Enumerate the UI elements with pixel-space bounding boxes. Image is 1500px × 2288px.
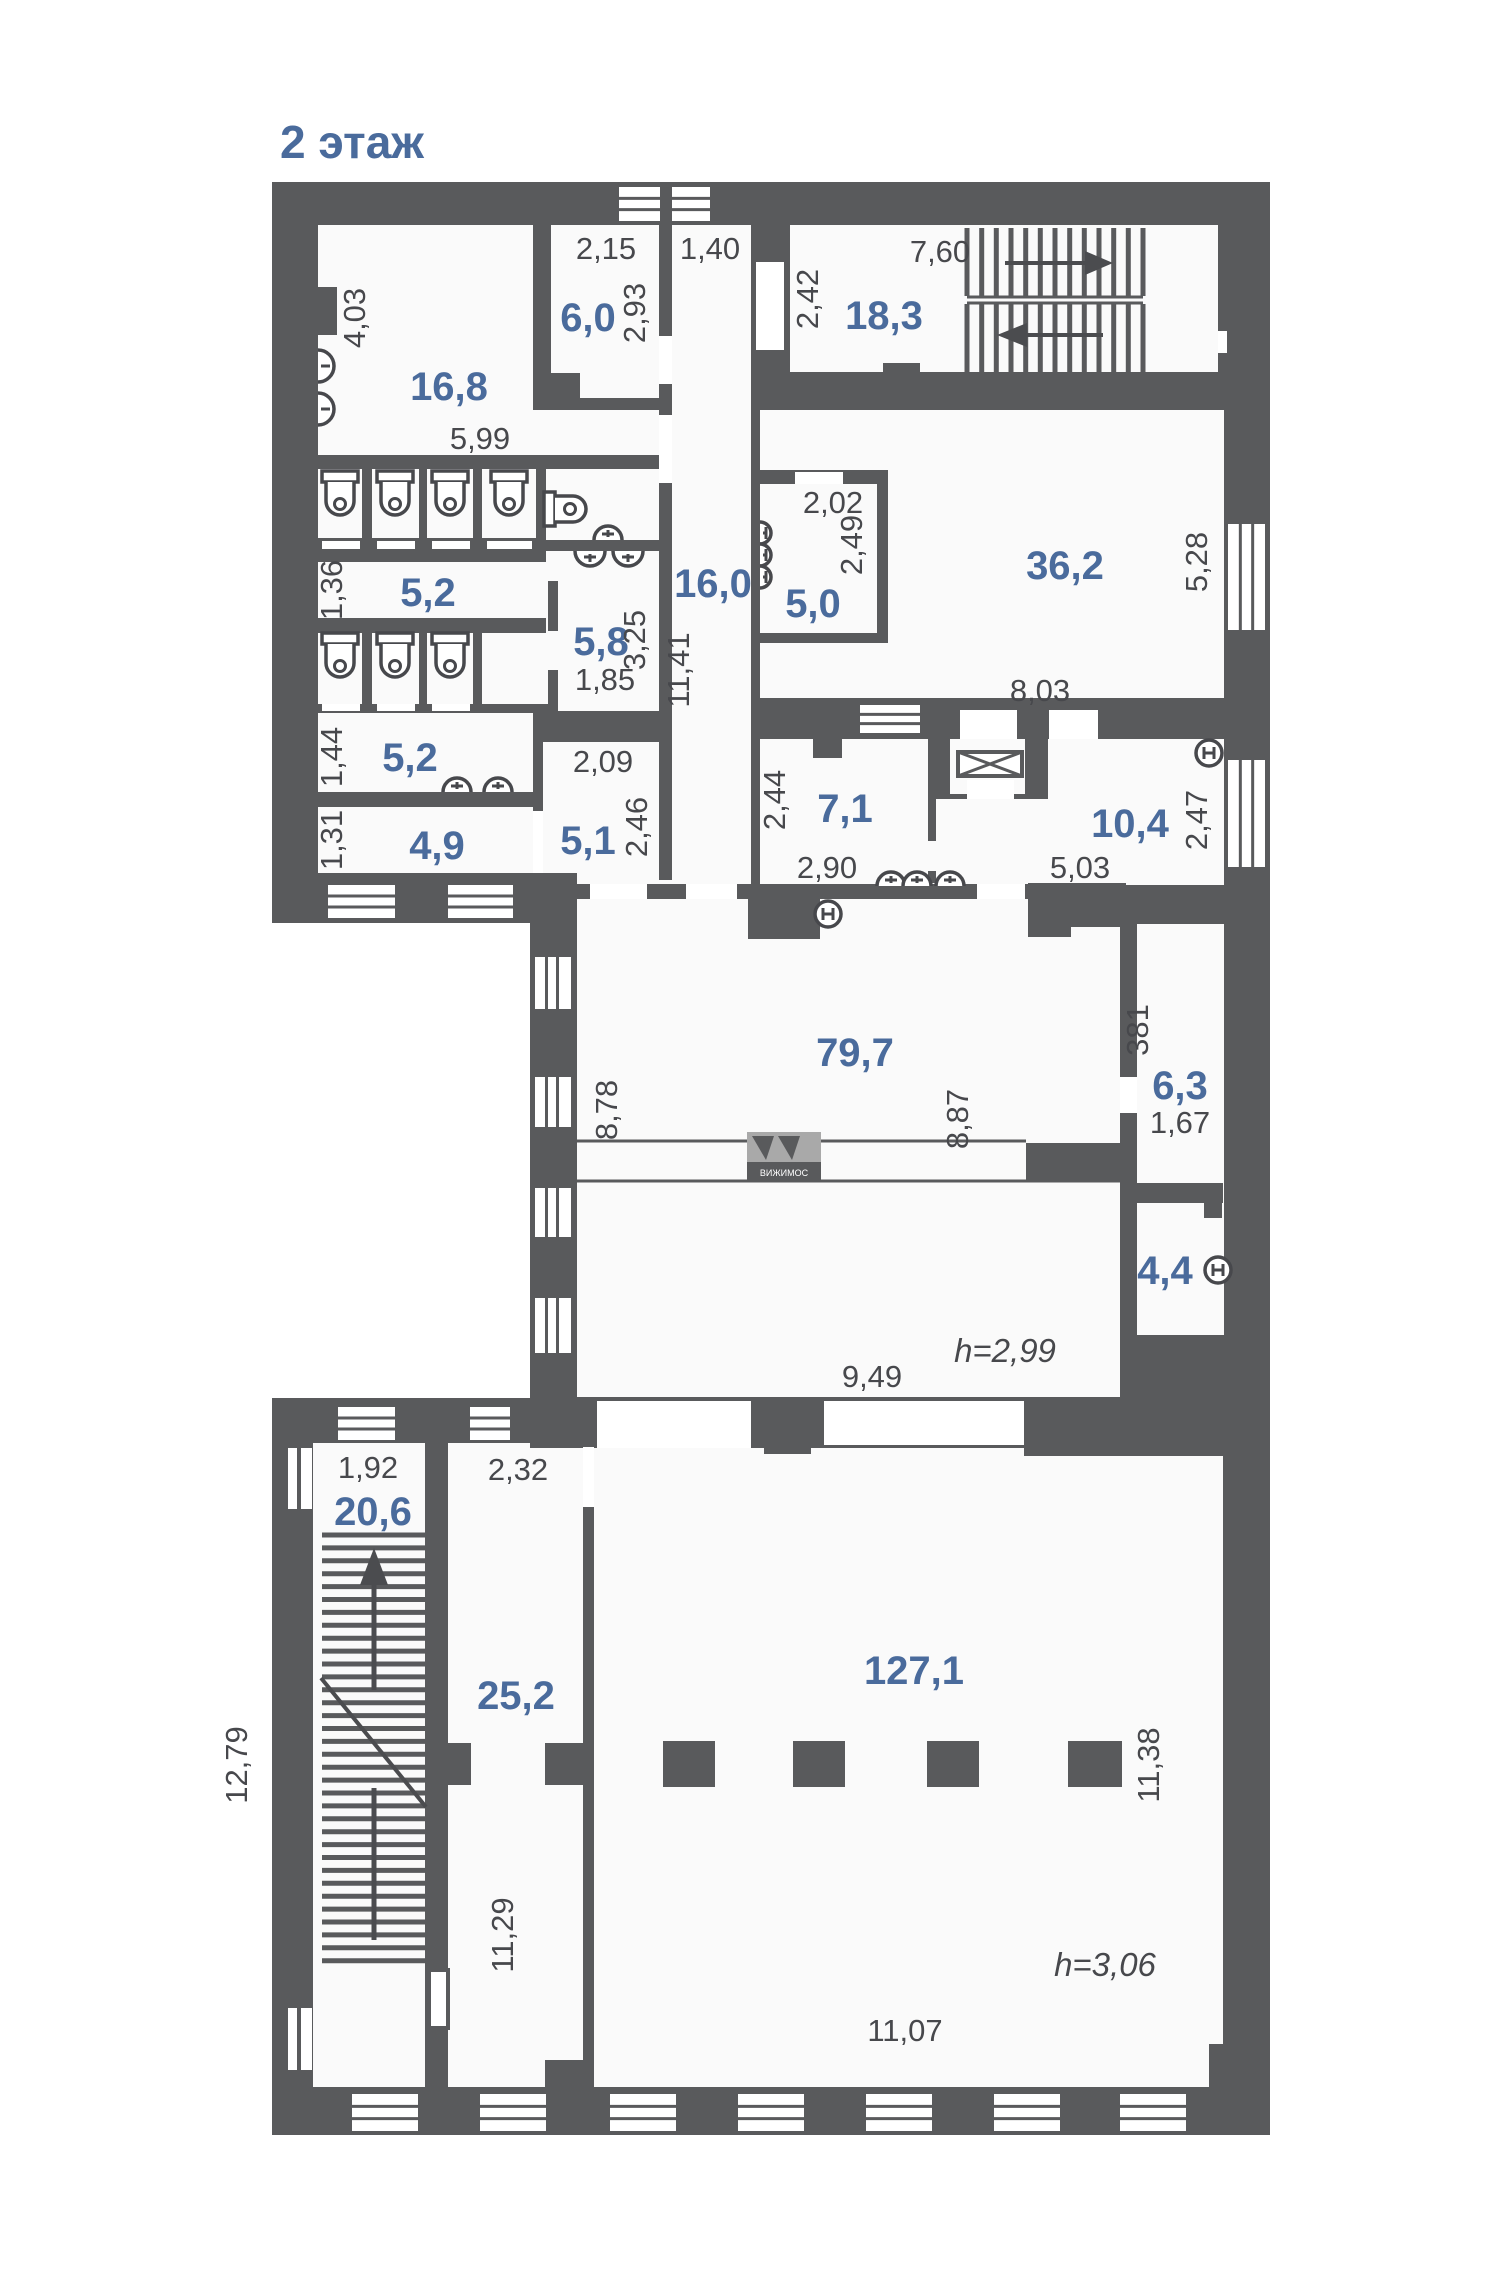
svg-text:11,38: 11,38: [1131, 1727, 1166, 1802]
svg-text:9,49: 9,49: [842, 1359, 902, 1394]
svg-text:6,0: 6,0: [560, 296, 616, 340]
svg-text:2 этаж: 2 этаж: [280, 116, 424, 168]
svg-text:5,99: 5,99: [450, 421, 510, 456]
svg-text:h=2,99: h=2,99: [954, 1332, 1056, 1369]
svg-text:16,0: 16,0: [674, 562, 752, 606]
svg-text:5,2: 5,2: [382, 736, 438, 780]
svg-text:h=3,06: h=3,06: [1054, 1946, 1156, 1983]
svg-text:4,03: 4,03: [337, 288, 372, 348]
svg-text:5,03: 5,03: [1050, 850, 1110, 885]
svg-text:1,40: 1,40: [680, 231, 740, 266]
svg-text:5,28: 5,28: [1179, 532, 1214, 592]
svg-text:5,1: 5,1: [560, 819, 616, 863]
svg-text:6,3: 6,3: [1152, 1064, 1208, 1108]
svg-text:5,2: 5,2: [400, 571, 456, 615]
svg-text:2,32: 2,32: [488, 1452, 548, 1487]
svg-text:1,31: 1,31: [314, 810, 349, 870]
svg-text:2,02: 2,02: [803, 485, 863, 520]
svg-text:36,2: 36,2: [1026, 544, 1104, 588]
svg-text:2,93: 2,93: [617, 283, 652, 343]
svg-text:20,6: 20,6: [334, 1490, 412, 1534]
svg-text:ВИЖИМОС: ВИЖИМОС: [760, 1168, 809, 1178]
svg-text:18,3: 18,3: [845, 294, 923, 338]
svg-text:8,78: 8,78: [589, 1080, 624, 1140]
svg-text:2,15: 2,15: [576, 231, 636, 266]
svg-text:2,46: 2,46: [619, 797, 654, 857]
svg-text:1,92: 1,92: [338, 1450, 398, 1485]
svg-text:25,2: 25,2: [477, 1674, 555, 1718]
svg-text:79,7: 79,7: [816, 1031, 894, 1075]
svg-text:4,9: 4,9: [409, 824, 465, 868]
svg-text:1,85: 1,85: [575, 662, 635, 697]
svg-text:2,49: 2,49: [834, 515, 869, 575]
svg-text:2,47: 2,47: [1179, 790, 1214, 850]
svg-text:11,41: 11,41: [661, 632, 696, 707]
svg-text:10,4: 10,4: [1091, 802, 1170, 846]
svg-text:2,44: 2,44: [757, 770, 792, 830]
svg-text:381: 381: [1120, 1004, 1155, 1056]
svg-text:11,07: 11,07: [867, 2013, 942, 2048]
svg-text:12,79: 12,79: [219, 1726, 254, 1804]
svg-text:2,42: 2,42: [790, 269, 825, 329]
svg-text:7,60: 7,60: [910, 234, 970, 269]
svg-text:2,09: 2,09: [573, 744, 633, 779]
svg-text:5,0: 5,0: [785, 582, 841, 626]
svg-text:16,8: 16,8: [410, 365, 488, 409]
svg-text:11,29: 11,29: [485, 1897, 520, 1972]
svg-text:127,1: 127,1: [864, 1649, 964, 1693]
svg-text:1,44: 1,44: [314, 727, 349, 787]
svg-text:4,4: 4,4: [1137, 1249, 1193, 1293]
svg-text:1,36: 1,36: [314, 560, 349, 620]
svg-text:7,1: 7,1: [817, 787, 873, 831]
svg-text:8,87: 8,87: [940, 1089, 975, 1149]
svg-text:2,90: 2,90: [797, 850, 857, 885]
svg-text:8,03: 8,03: [1010, 673, 1070, 708]
svg-text:1,67: 1,67: [1150, 1105, 1210, 1140]
